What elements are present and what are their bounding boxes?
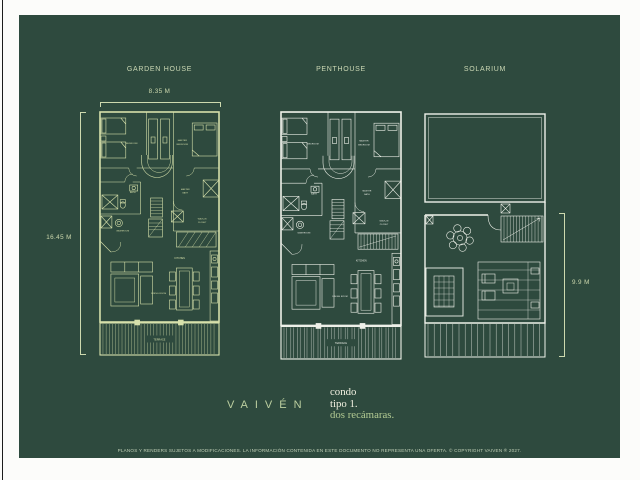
room-label: CLOSET xyxy=(380,224,389,226)
room-label: MASTER xyxy=(363,189,372,192)
room-label: DINING ROOM xyxy=(151,293,167,295)
solarium-floorplan xyxy=(424,112,546,358)
room-label: KITCHEN xyxy=(356,260,367,262)
room-label: MASTER xyxy=(178,139,188,142)
penthouse-title: PENTHOUSE xyxy=(280,66,402,73)
tagline-block: condo tipo 1. dos recámaras. xyxy=(330,387,394,422)
solarium-height-dimension: 9.9 M xyxy=(572,279,612,286)
room-label: TERRACE xyxy=(154,338,166,341)
tagline-line-1: condo xyxy=(330,387,394,399)
legal-disclaimer: PLANOS Y RENDERS SUJETOS A MODIFICACIONE… xyxy=(19,448,620,453)
room-label: WALK-IN xyxy=(198,217,207,220)
room-label: BATH xyxy=(311,192,317,195)
room-label: BATH xyxy=(130,191,136,194)
tagline-line-3: dos recámaras. xyxy=(330,410,394,422)
right-height-dimension-bracket xyxy=(559,213,565,357)
garden-house-title: GARDEN HOUSE xyxy=(99,66,220,73)
room-label: DINING ROOM xyxy=(332,296,348,298)
solarium-title: SOLARIUM xyxy=(424,66,546,73)
room-label: TERRACE xyxy=(335,342,347,345)
room-label: BEDROOM xyxy=(177,144,189,146)
garden-house-height-dimension: 16.45 M xyxy=(34,234,84,241)
room-label: KITCHEN xyxy=(174,258,185,260)
room-label: BATH xyxy=(364,193,370,196)
garden-house-width-dimension: 8.35 M xyxy=(99,88,220,95)
vaiven-logo: VAIVÉN xyxy=(227,399,309,411)
room-label: WALK-IN xyxy=(380,219,389,222)
garden-house-floorplan: BEDROOMMASTERBEDROOMBATHWASHROOMMASTERBA… xyxy=(99,111,220,356)
penthouse-floorplan: BEDROOMMASTERBEDROOMBATHWASHROOMMASTERBA… xyxy=(280,111,402,360)
room-label: BEDROOM xyxy=(307,144,319,146)
room-label: WASHROOM xyxy=(116,229,129,232)
left-height-dimension-bracket xyxy=(80,112,86,355)
room-label: BEDROOM xyxy=(358,144,370,146)
room-label: WASHROOM xyxy=(298,231,311,234)
floor-plans-panel: GARDEN HOUSE PENTHOUSE SOLARIUM 8.35 M 1… xyxy=(19,15,620,458)
left-edge-line xyxy=(2,0,3,480)
room-label: MASTER xyxy=(181,188,190,191)
room-label: MASTER xyxy=(359,139,369,142)
room-label: BEDROOM xyxy=(126,143,138,145)
room-label: CLOSET xyxy=(198,222,207,224)
width-dimension-bracket xyxy=(100,102,221,107)
brochure-page: GARDEN HOUSE PENTHOUSE SOLARIUM 8.35 M 1… xyxy=(0,0,640,480)
room-label: BATH xyxy=(183,192,189,195)
